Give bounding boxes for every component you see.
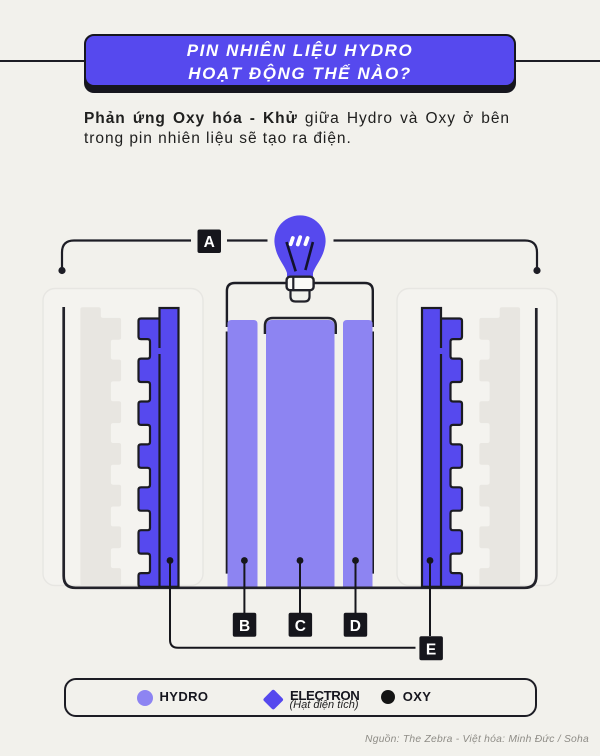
svg-text:D: D	[350, 618, 361, 635]
svg-text:A: A	[204, 234, 215, 251]
svg-text:C: C	[295, 618, 306, 635]
svg-text:B: B	[239, 618, 250, 635]
svg-text:E: E	[426, 642, 436, 659]
